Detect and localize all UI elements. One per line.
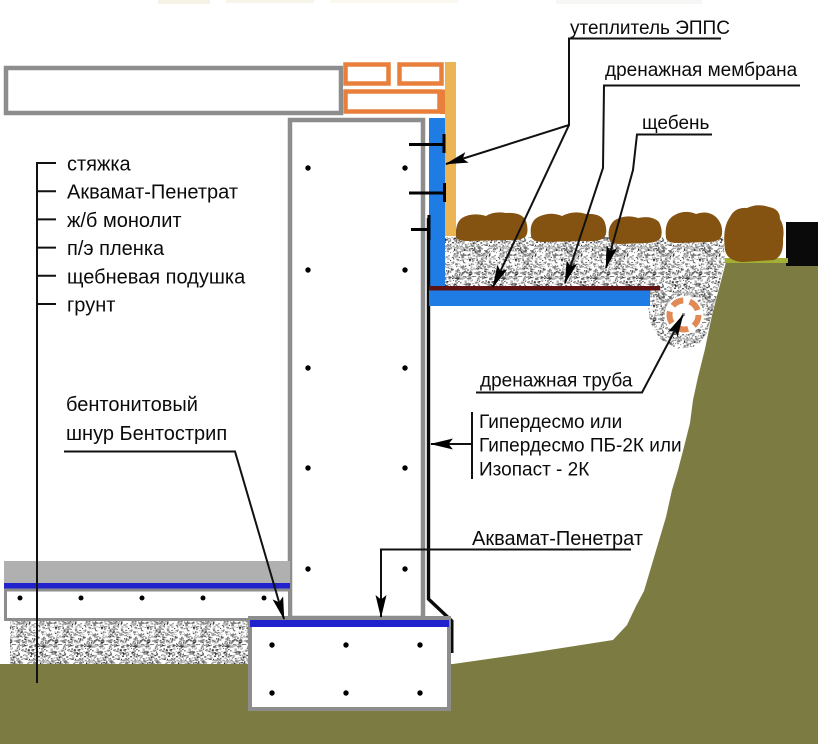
svg-text:Аквамат-Пенетрат: Аквамат-Пенетрат (67, 182, 238, 204)
svg-text:Аквамат-Пенетрат: Аквамат-Пенетрат (472, 528, 643, 550)
svg-text:грунт: грунт (67, 295, 115, 317)
svg-text:п/э пленка: п/э пленка (67, 238, 165, 260)
svg-text:Изопаст - 2К: Изопаст - 2К (479, 459, 589, 480)
svg-text:ж/б монолит: ж/б монолит (67, 210, 182, 232)
svg-text:дренажная мембрана: дренажная мембрана (605, 60, 798, 81)
svg-text:дренажная труба: дренажная труба (480, 371, 633, 392)
svg-text:Гипердесмо или: Гипердесмо или (479, 412, 622, 433)
svg-text:бентонитовый: бентонитовый (66, 394, 198, 416)
svg-text:шнур Бентострип: шнур Бентострип (66, 423, 227, 445)
svg-text:утеплитель ЭППС: утеплитель ЭППС (570, 18, 730, 39)
svg-text:щебневая подушка: щебневая подушка (67, 266, 246, 288)
svg-text:щебень: щебень (642, 113, 710, 134)
svg-text:Гипердесмо ПБ-2К или: Гипердесмо ПБ-2К или (479, 436, 682, 457)
svg-text:стяжка: стяжка (67, 154, 132, 176)
